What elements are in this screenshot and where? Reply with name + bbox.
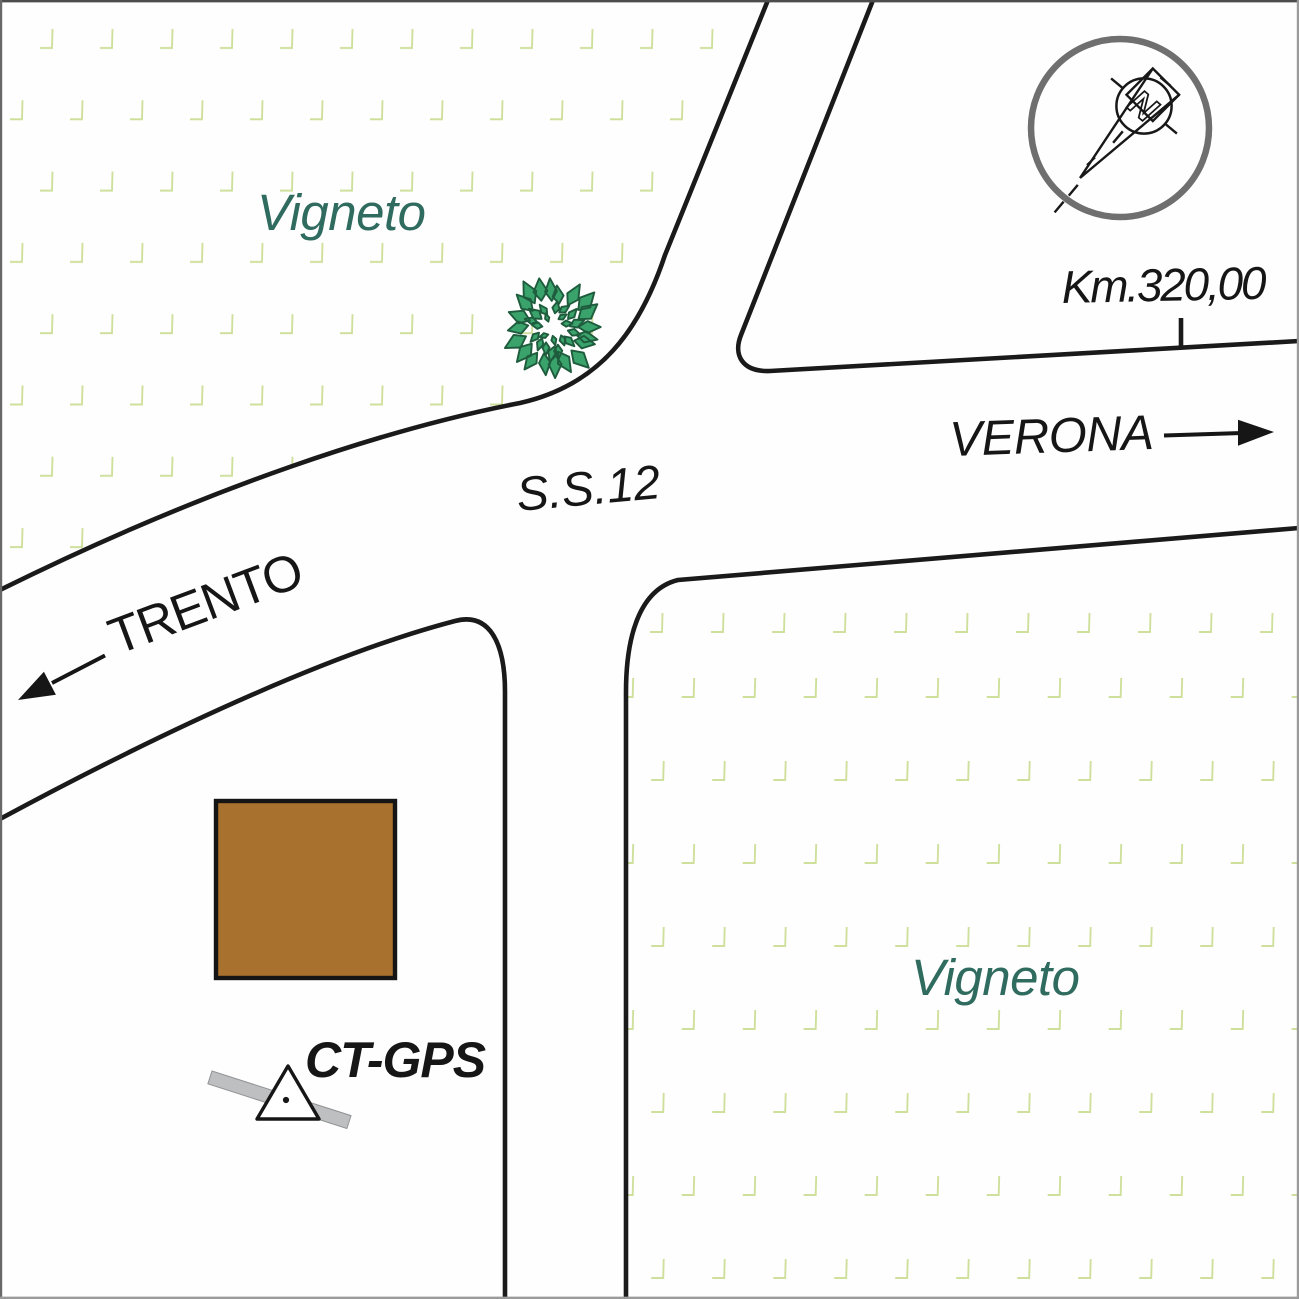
- svg-text:Vigneto: Vigneto: [257, 184, 426, 241]
- svg-text:CT-GPS: CT-GPS: [305, 1032, 486, 1088]
- svg-text:Km.320,00: Km.320,00: [1061, 257, 1267, 313]
- svg-text:Vigneto: Vigneto: [911, 949, 1080, 1006]
- svg-text:VERONA: VERONA: [948, 406, 1154, 467]
